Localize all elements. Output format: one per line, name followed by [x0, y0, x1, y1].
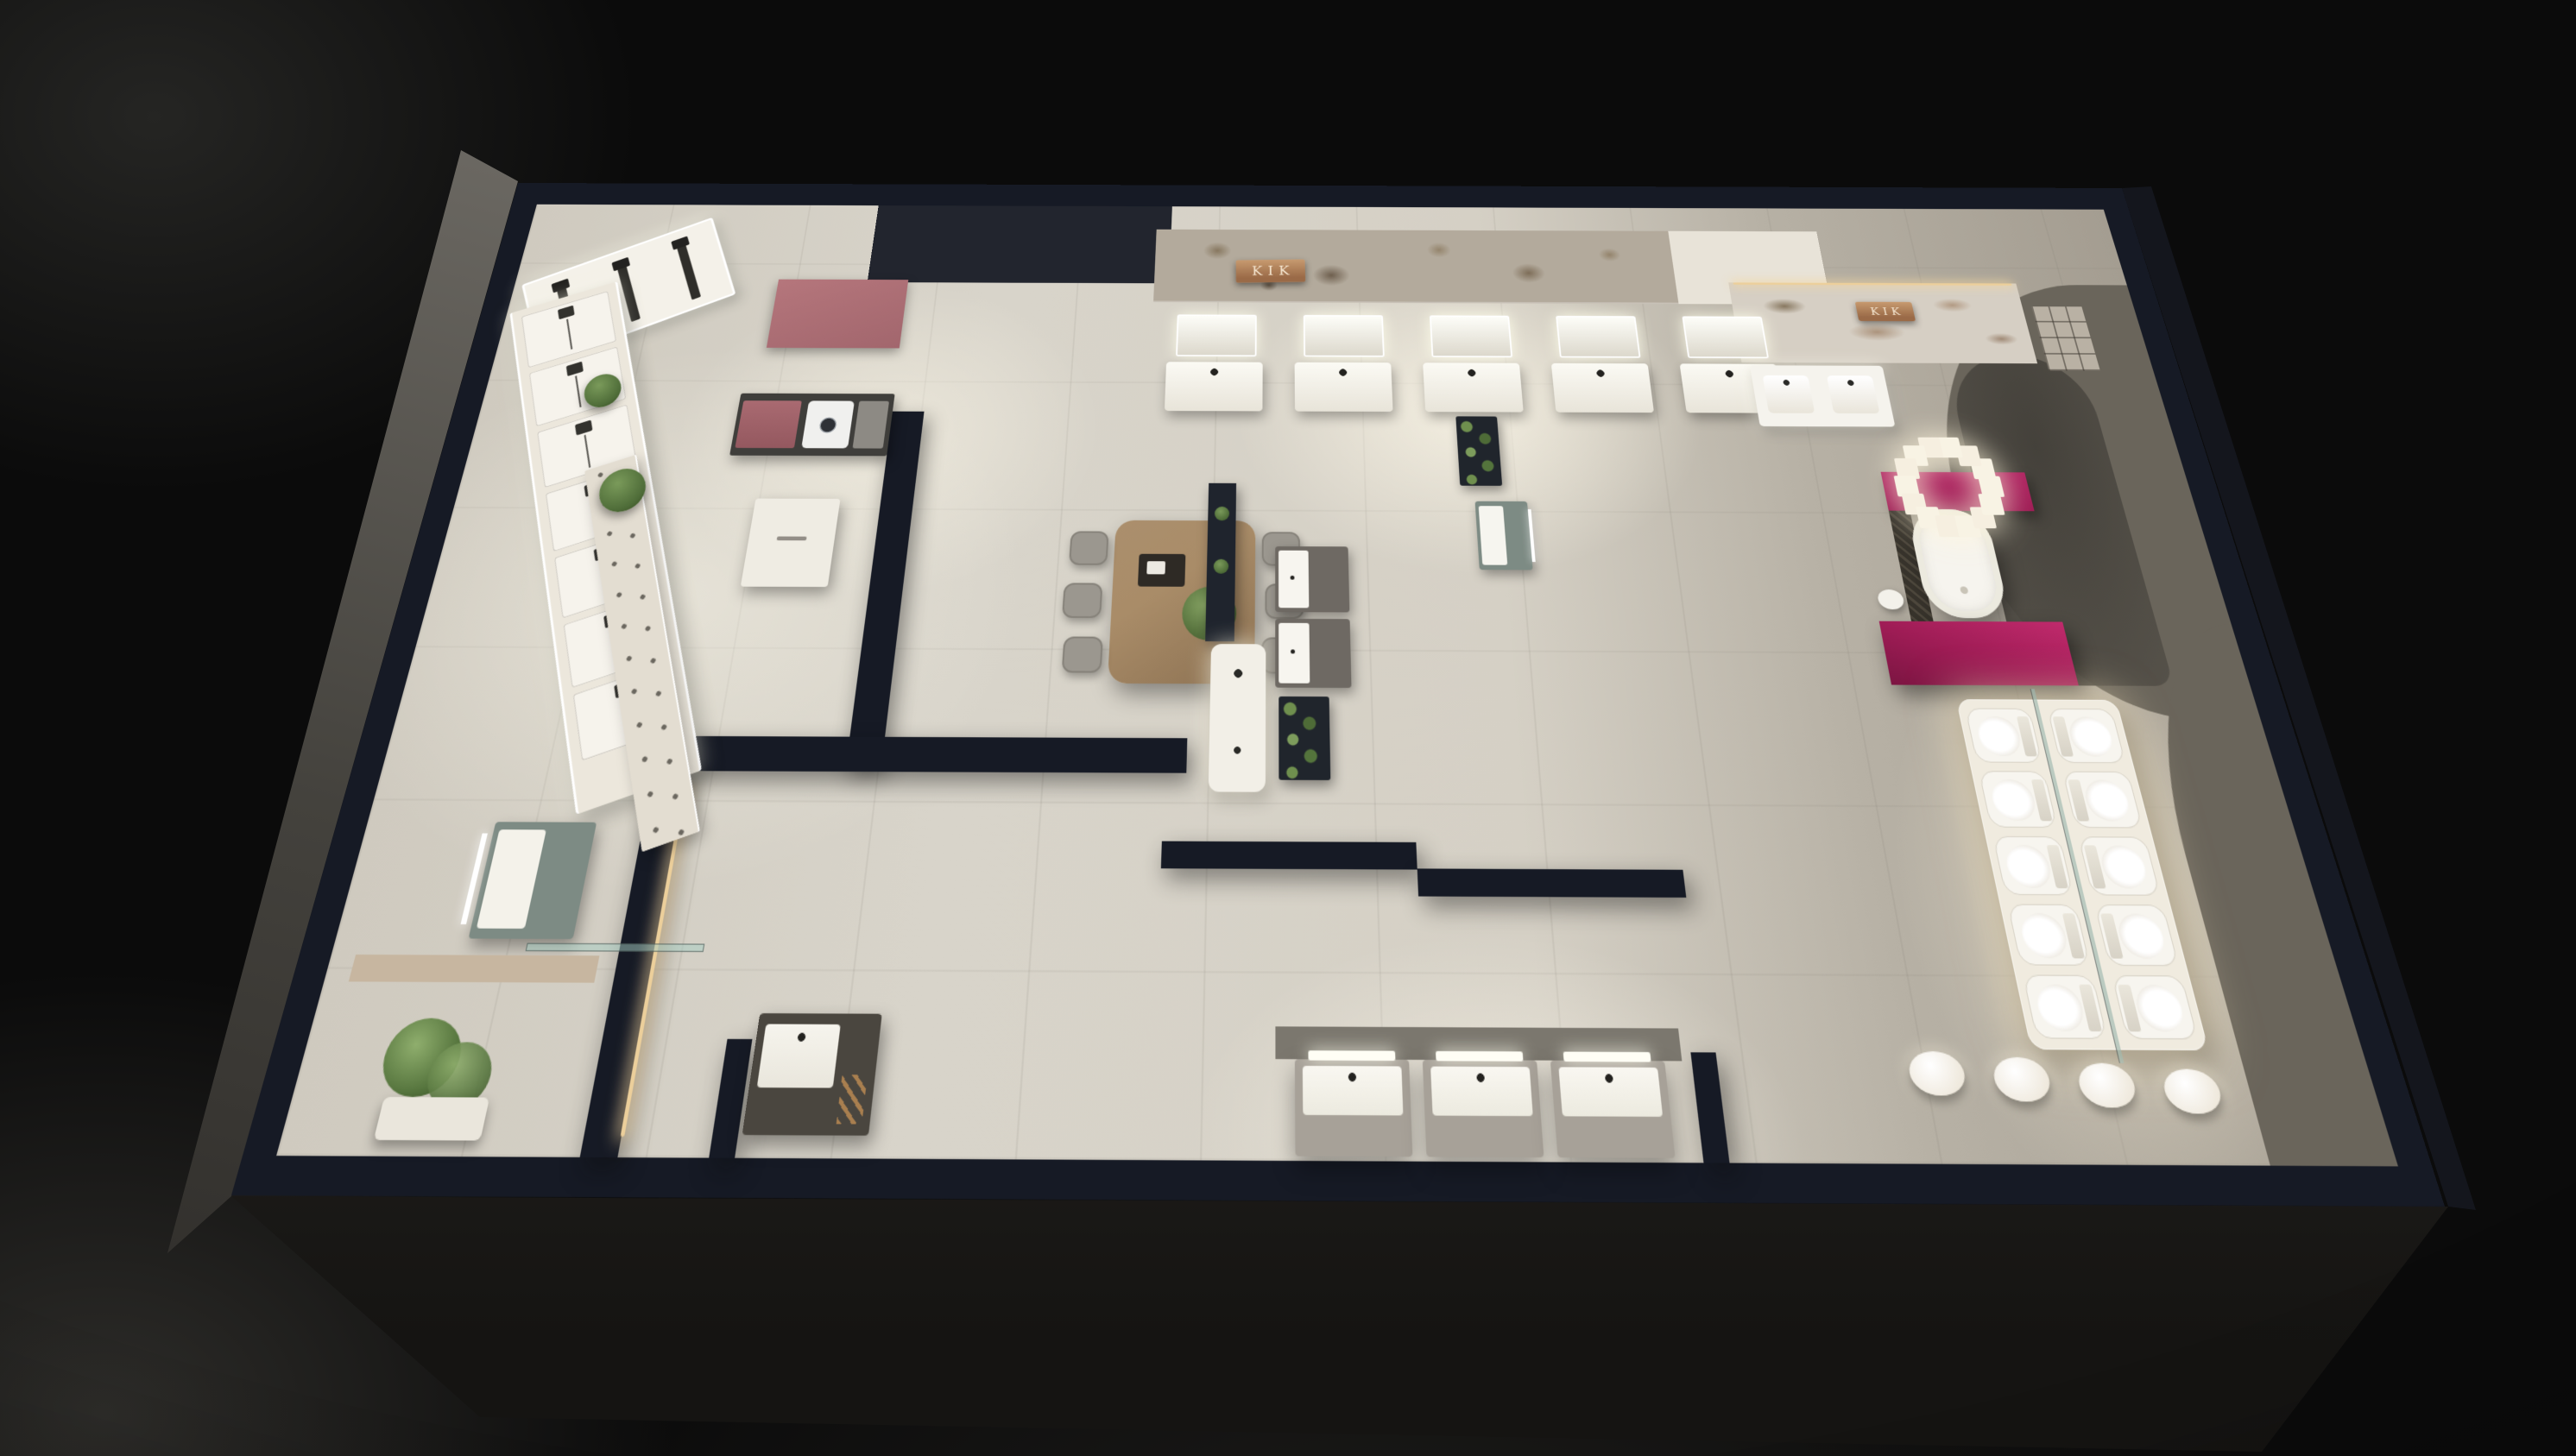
reception-counter	[741, 499, 841, 587]
beige-wall-band	[349, 955, 600, 983]
interior-wall	[653, 736, 1187, 773]
showroom-floor-plan: KIK KIK	[231, 183, 2445, 1207]
magenta-reception-desk	[1879, 621, 2079, 686]
toilet	[2112, 975, 2199, 1040]
vanity-unit	[1420, 315, 1523, 412]
interior-wall	[1161, 841, 1417, 870]
sink-island	[1209, 644, 1266, 792]
dark-ceiling-cove	[868, 205, 1172, 283]
dining-chair	[1069, 531, 1108, 564]
vanity-unit	[1275, 546, 1349, 612]
green-wall-planter	[1279, 696, 1330, 780]
cabinet	[853, 401, 890, 449]
pink-wall-panel	[767, 280, 908, 349]
green-wall-planter	[1455, 416, 1502, 486]
toilet	[1992, 836, 2074, 896]
interior-wall	[1417, 868, 1687, 898]
toilet	[2078, 836, 2161, 896]
vanity-unit	[1165, 314, 1263, 411]
toilet	[1965, 709, 2042, 763]
teal-vanity-unit	[1474, 501, 1532, 570]
vanity-unit	[1275, 619, 1351, 688]
toilet	[1979, 771, 2058, 828]
vanity-unit	[1546, 316, 1654, 413]
vanity-unit	[1294, 315, 1392, 412]
toilet	[2023, 974, 2108, 1038]
vanity-unit	[1423, 1060, 1544, 1157]
dining-chair	[1062, 636, 1103, 672]
marble-feature-wall	[1728, 282, 2037, 363]
dark-vanity-with-ladder	[742, 1013, 882, 1136]
stone-feature-wall	[1153, 230, 1678, 304]
toilet	[2062, 772, 2144, 829]
bubble-chandelier	[1948, 486, 1949, 487]
magenta-tub-backwall	[1881, 472, 2035, 512]
brand-sign-marble-wall: KIK	[1855, 302, 1916, 321]
toilet	[2007, 904, 2090, 965]
toilet	[2094, 904, 2179, 966]
double-sink-vanity	[1750, 365, 1895, 426]
planter-box	[374, 1097, 489, 1141]
vanity-unit	[1295, 1059, 1413, 1157]
toilet	[2047, 709, 2125, 763]
shower-column	[675, 240, 701, 300]
table-tray	[1138, 554, 1185, 587]
vanity-unit	[1550, 1061, 1676, 1158]
brand-sign-stone-wall: KIK	[1236, 259, 1306, 282]
glass-partition	[526, 943, 705, 952]
plant-shelf-divider	[1205, 483, 1236, 641]
dining-chair	[1062, 583, 1102, 618]
scene: KIK KIK	[0, 0, 2576, 1456]
laundry-counter	[729, 394, 895, 457]
